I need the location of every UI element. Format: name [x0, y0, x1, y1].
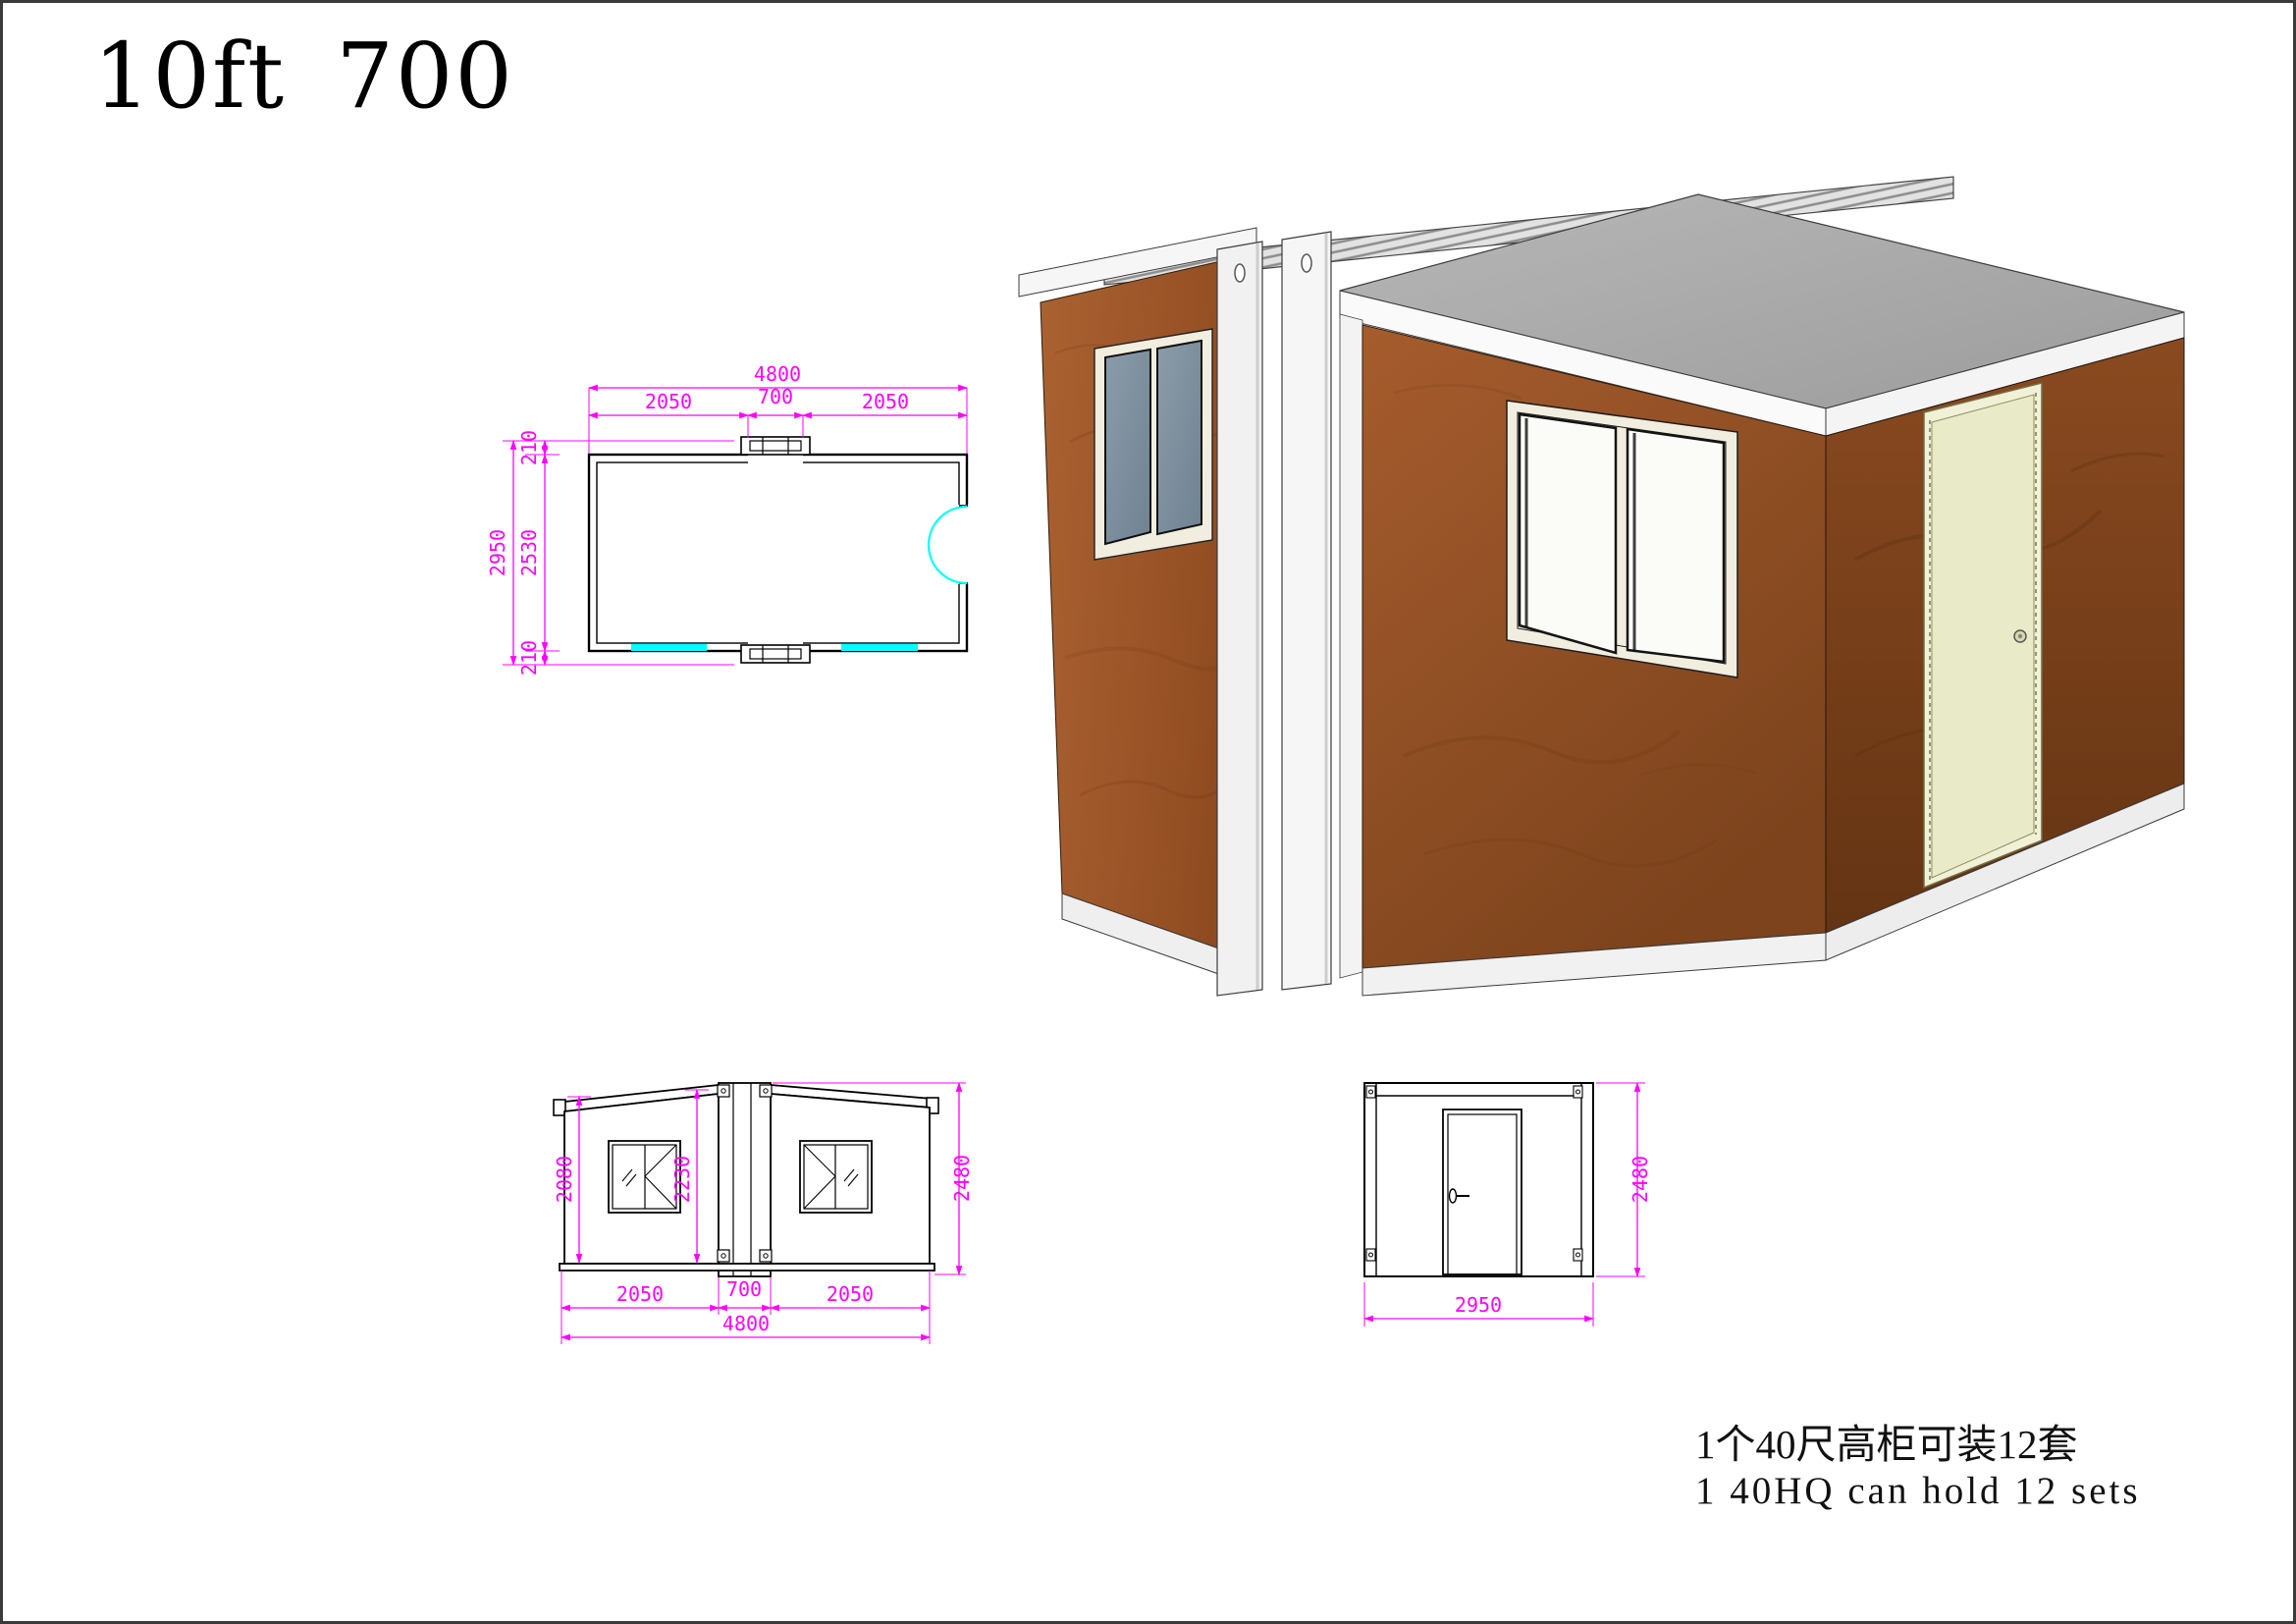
- plan-dim-left-width: 2050: [645, 390, 692, 413]
- left-unit-window: [1095, 329, 1212, 560]
- side-elevation: 2480 2950: [1355, 1051, 1679, 1384]
- plan-dim-total-height: 2950: [486, 529, 509, 576]
- plan-dim-center-width: 700: [758, 385, 793, 408]
- house-3d-render: [1011, 147, 2189, 1011]
- fe-dim-center-width: 700: [726, 1277, 762, 1301]
- plan-window-marker-right: [841, 644, 918, 651]
- side-structure: [1364, 1083, 1593, 1276]
- plan-dim-bottom-offset: 210: [517, 640, 541, 676]
- entry-door: [1924, 383, 2042, 888]
- plan-dim-top-offset: 210: [517, 430, 541, 465]
- elevation-structure: [554, 1083, 938, 1276]
- connector-column-left: [1217, 242, 1262, 996]
- floor-plan: 4800 2050 700 2050 2950 210 2530 210: [481, 353, 1001, 697]
- page-title: 10ft 700: [93, 24, 514, 129]
- fe-dim-left-width: 2050: [616, 1282, 664, 1306]
- connector-column-right: [1282, 232, 1331, 990]
- fe-dim-total-width: 4800: [722, 1312, 770, 1335]
- front-elevation: 2080 2230 2480 2050 700 2050 4800: [530, 1051, 1001, 1375]
- se-dim-width: 2950: [1455, 1293, 1502, 1317]
- fe-dim-right-width: 2050: [827, 1282, 874, 1306]
- elevation-window-right: [800, 1141, 872, 1213]
- door-handle: [1450, 1189, 1457, 1203]
- capacity-note-en: 1 40HQ can hold 12 sets: [1695, 1469, 2141, 1513]
- plan-walls: [589, 437, 969, 663]
- plan-dim-right-width: 2050: [862, 390, 909, 413]
- drawing-page: 10ft 700: [0, 0, 2296, 1624]
- plan-window-marker-left: [631, 644, 707, 651]
- fe-dim-overall-height: 2480: [950, 1155, 974, 1202]
- front-unit-window: [1507, 401, 1737, 677]
- front-unit-corner-trim: [1340, 314, 1362, 978]
- capacity-note-zh: 1个40尺高柜可装12套: [1695, 1422, 2141, 1469]
- plan-dim-inner-height: 2530: [517, 529, 541, 576]
- se-dim-height: 2480: [1629, 1156, 1652, 1203]
- fe-dim-wall-height: 2080: [553, 1156, 576, 1203]
- fe-dim-center-height: 2230: [670, 1156, 694, 1203]
- capacity-note: 1个40尺高柜可装12套 1 40HQ can hold 12 sets: [1695, 1422, 2141, 1513]
- side-door: [1443, 1110, 1522, 1274]
- plan-dim-total-width: 4800: [754, 362, 801, 386]
